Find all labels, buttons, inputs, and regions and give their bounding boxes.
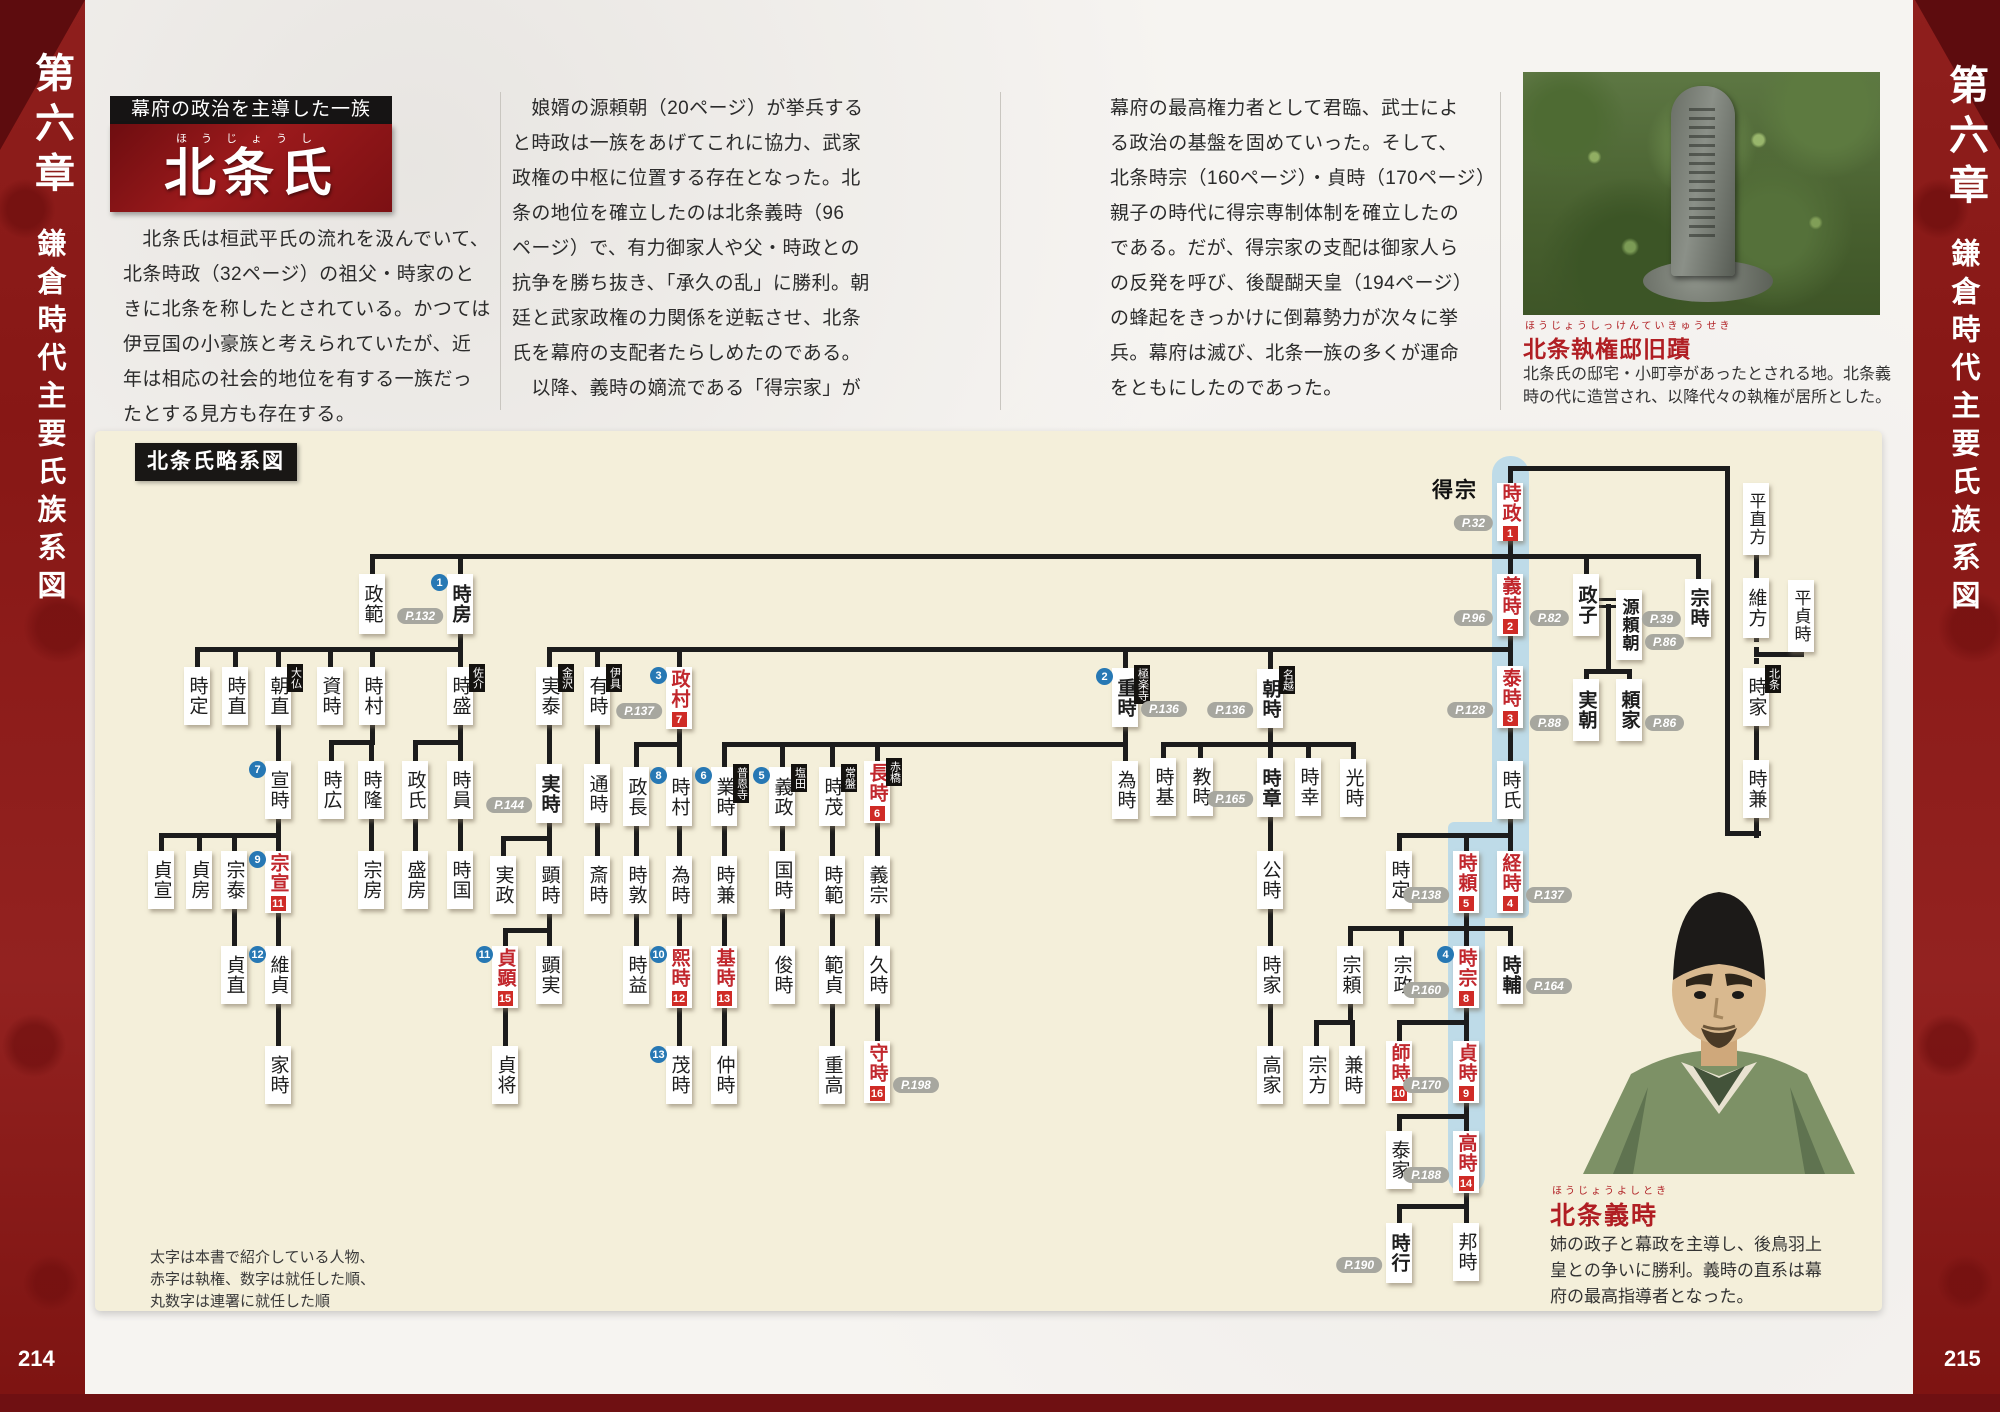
- tree-connector: [1754, 724, 1759, 764]
- page-ref-badge: P.165: [1207, 791, 1253, 807]
- tree-connector: [634, 912, 639, 950]
- tree-connector: [1508, 726, 1513, 765]
- person-name: 貞宣: [152, 860, 171, 900]
- tree-connector: [1397, 1020, 1469, 1025]
- tree-connector: [276, 1002, 281, 1050]
- tree-connector: [780, 824, 785, 855]
- tree-connector: [1314, 1020, 1319, 1050]
- person-node: 久時: [864, 946, 890, 1004]
- person-node: 俊時: [769, 946, 795, 1004]
- person-name: 時輔: [1501, 955, 1520, 995]
- person-name: 実朝: [1577, 690, 1596, 730]
- yoshitoki-illustration: [1553, 862, 1885, 1174]
- shikken-order-badge: 14: [1459, 1176, 1474, 1191]
- person-name: 政長: [627, 777, 646, 817]
- branch-family-tag: 塩田: [791, 764, 807, 792]
- person-node: 顕実: [536, 946, 562, 1004]
- person-name: 盛房: [406, 860, 425, 900]
- person-name: 実時: [540, 774, 559, 814]
- tree-connector: [547, 647, 1513, 652]
- person-node: 資時: [317, 667, 343, 725]
- rensho-order-badge: 9: [249, 851, 266, 868]
- person-name: 重高: [823, 1055, 842, 1095]
- page-ref-badge: P.86: [1645, 715, 1684, 731]
- person-node: 時村: [666, 767, 692, 826]
- tree-connector: [1268, 907, 1273, 950]
- shikken-order-badge: 11: [271, 896, 286, 911]
- tree-legend: 太字は本書で紹介している人物、赤字は執権、数字は就任した順、丸数字は連署に就任し…: [150, 1246, 375, 1312]
- person-node: 時氏: [1497, 761, 1523, 819]
- person-name: 斎時: [588, 865, 607, 905]
- person-name: 時宗: [1457, 948, 1476, 988]
- tree-connector: [1508, 466, 1730, 471]
- shikken-order-badge: 2: [1503, 619, 1518, 634]
- page-ref-badge: P.138: [1403, 887, 1449, 903]
- page-ref-badge: P.132: [397, 608, 443, 624]
- person-name: 経時: [1501, 853, 1520, 893]
- rensho-order-badge: 6: [695, 767, 712, 784]
- rensho-order-badge: 11: [476, 946, 493, 963]
- person-node: 重高: [819, 1046, 845, 1104]
- page-ref-badge: P.144: [486, 797, 532, 813]
- person-name: 重時: [1116, 678, 1135, 718]
- person-node: 国時: [769, 851, 795, 909]
- person-node: 斎時: [584, 856, 610, 914]
- person-node: 経時4: [1497, 851, 1523, 913]
- page-ref-badge: P.188: [1403, 1167, 1449, 1183]
- person-node: 貞顕15: [492, 946, 518, 1008]
- person-name: 基時: [715, 948, 734, 988]
- page-ref-badge: P.198: [893, 1077, 939, 1093]
- person-node: 時基: [1150, 758, 1176, 816]
- tree-connector: [1508, 634, 1513, 670]
- person-name: 顕時: [540, 865, 559, 905]
- person-name: 政範: [363, 584, 382, 624]
- person-node: 為時: [1112, 761, 1138, 819]
- person-node: 守時16: [864, 1041, 890, 1103]
- person-name: 時益: [627, 955, 646, 995]
- person-name: 頼家: [1620, 690, 1639, 730]
- rensho-order-badge: 12: [249, 946, 266, 963]
- tree-connector: [1725, 466, 1730, 836]
- person-node: 時敦: [623, 856, 649, 914]
- person-name: 宗方: [1307, 1055, 1326, 1095]
- rensho-order-badge: 10: [650, 946, 667, 963]
- person-name: 国時: [773, 860, 792, 900]
- branch-family-tag: 普恩寺: [733, 764, 749, 803]
- tree-connector: [634, 742, 682, 747]
- shikken-order-badge: 8: [1459, 991, 1474, 1006]
- person-name: 時敦: [627, 865, 646, 905]
- person-name: 実泰: [540, 676, 559, 716]
- person-node: 時隆: [358, 761, 384, 819]
- person-node: 頼家: [1616, 679, 1642, 741]
- person-node: 時益: [623, 946, 649, 1004]
- person-name: 顕実: [540, 955, 559, 995]
- person-node: 貞房: [186, 851, 212, 909]
- person-name: 時村: [363, 676, 382, 716]
- person-node: 時政1: [1497, 483, 1523, 541]
- page-ref-badge: P.170: [1403, 1077, 1449, 1093]
- tree-connector: [1754, 816, 1759, 838]
- rensho-order-badge: 5: [753, 767, 770, 784]
- person-name: 茂時: [670, 1055, 689, 1095]
- person-name: 義宗: [868, 865, 887, 905]
- text-line: 皇との争いに勝利。義時の直系は幕: [1550, 1256, 1890, 1282]
- rensho-order-badge: 8: [650, 767, 667, 784]
- person-name: 政子: [1577, 585, 1596, 625]
- rensho-order-badge: 3: [650, 667, 667, 684]
- tree-connector: [677, 1006, 682, 1050]
- person-node: 兼時: [1339, 1046, 1365, 1104]
- person-node: 時国: [447, 851, 473, 909]
- person-name: 維方: [1747, 588, 1766, 628]
- person-node: 時兼: [1743, 760, 1769, 818]
- person-name: 宗頼: [1341, 955, 1360, 995]
- person-node: 為時: [666, 856, 692, 914]
- text-line: 太字は本書で紹介している人物、: [150, 1246, 375, 1268]
- person-node: 平直方: [1743, 483, 1769, 555]
- tree-connector: [677, 824, 682, 860]
- person-node: 師時10: [1386, 1041, 1412, 1103]
- person-name: 朝時: [1261, 679, 1280, 719]
- person-node: 宗方: [1303, 1046, 1329, 1104]
- person-name: 高家: [1261, 1055, 1280, 1095]
- person-node: 平貞時: [1788, 580, 1814, 652]
- person-name: 時茂: [823, 777, 842, 817]
- person-node: 基時13: [711, 946, 737, 1008]
- person-node: 宗時: [1685, 579, 1711, 637]
- person-name: 平貞時: [1793, 589, 1810, 643]
- tree-canvas: 平直方維方平貞時時家北条時兼時政1P.32政範時房1P.132義時2P.96政子…: [0, 0, 2000, 1412]
- person-node: 貞直: [221, 946, 247, 1004]
- person-node: 時行: [1386, 1223, 1412, 1283]
- person-node: 義時2: [1497, 574, 1523, 636]
- person-name: 業時: [715, 777, 734, 817]
- tree-connector: [595, 821, 600, 860]
- branch-family-tag: 金沢: [558, 664, 574, 692]
- person-name: 家時: [269, 1055, 288, 1095]
- tree-connector: [232, 907, 237, 950]
- person-node: 時章: [1257, 758, 1283, 817]
- person-name: 時盛: [451, 676, 470, 716]
- page-ref-badge: P.128: [1447, 702, 1493, 718]
- person-node: 高時14: [1453, 1131, 1479, 1193]
- person-name: 範貞: [823, 955, 842, 995]
- tree-connector: [1348, 926, 1513, 931]
- tokuso-label: 得宗: [1432, 474, 1478, 504]
- tree-connector: [1268, 1002, 1273, 1050]
- person-node: 時宗8: [1453, 946, 1479, 1008]
- rensho-order-badge: 1: [431, 574, 448, 591]
- rensho-order-badge: 7: [249, 761, 266, 778]
- branch-family-tag: 極楽寺: [1134, 665, 1150, 704]
- branch-family-tag: 常盤: [841, 764, 857, 792]
- shikken-order-badge: 15: [498, 991, 513, 1006]
- person-node: 宗宣11: [265, 851, 291, 913]
- tree-connector: [595, 723, 600, 768]
- person-name: 時政: [1501, 483, 1520, 523]
- person-name: 時章: [1261, 768, 1280, 808]
- person-node: 盛房: [402, 851, 428, 909]
- tree-connector: [780, 907, 785, 950]
- tree-connector: [722, 824, 727, 860]
- tree-connector: [458, 817, 463, 855]
- person-node: 時広: [318, 761, 344, 819]
- person-name: 時定: [188, 676, 207, 716]
- tree-connector: [875, 912, 880, 950]
- person-name: 貞顕: [496, 948, 515, 988]
- person-name: 時範: [823, 865, 842, 905]
- tree-connector: [369, 817, 374, 855]
- person-name: 公時: [1261, 860, 1280, 900]
- person-name: 泰時: [1501, 668, 1520, 708]
- person-name: 仲時: [715, 1055, 734, 1095]
- tree-connector: [634, 824, 639, 860]
- tree-connector: [1584, 669, 1632, 674]
- person-node: 教時: [1187, 758, 1213, 816]
- person-name: 時幸: [1299, 767, 1318, 807]
- shikken-order-badge: 7: [672, 712, 687, 727]
- person-name: 政村: [670, 669, 689, 709]
- person-name: 宗宣: [269, 853, 288, 893]
- person-name: 師時: [1390, 1043, 1409, 1083]
- person-name: 時隆: [362, 770, 381, 810]
- person-node: 光時: [1340, 759, 1366, 817]
- person-name: 為時: [670, 865, 689, 905]
- tree-connector: [875, 1002, 880, 1045]
- page-ref-badge: P.39: [1642, 611, 1681, 627]
- page-ref-badge: P.32: [1454, 515, 1493, 531]
- portrait-caption-name: 北条義時: [1550, 1196, 1658, 1232]
- person-name: 俊時: [773, 955, 792, 995]
- page-number-left: 214: [18, 1346, 55, 1372]
- tree-connector: [1606, 604, 1611, 674]
- tree-connector: [370, 554, 1701, 559]
- rensho-order-badge: 2: [1096, 668, 1113, 685]
- yoshitoki-portrait: [1553, 862, 1885, 1174]
- person-name: 時氏: [1501, 770, 1520, 810]
- person-name: 時直: [226, 676, 245, 716]
- person-name: 義時: [1501, 576, 1520, 616]
- person-node: 貞宣: [148, 851, 174, 909]
- person-node: 時村: [359, 667, 385, 725]
- tree-connector: [1754, 652, 1804, 657]
- person-node: 貞時9: [1453, 1041, 1479, 1103]
- person-node: 邦時: [1453, 1223, 1479, 1281]
- person-node: 時頼5: [1453, 851, 1479, 913]
- rensho-order-badge: 4: [1437, 946, 1454, 963]
- person-name: 邦時: [1457, 1232, 1476, 1272]
- person-name: 宗房: [362, 860, 381, 900]
- person-node: 公時: [1257, 851, 1283, 909]
- page-number-right: 215: [1944, 1346, 1981, 1372]
- text-line: 姉の政子と幕政を主導し、後鳥羽上: [1550, 1230, 1890, 1256]
- person-name: 平直方: [1748, 492, 1765, 546]
- person-name: 時家: [1261, 955, 1280, 995]
- page-ref-badge: P.82: [1530, 610, 1569, 626]
- branch-family-tag: 大仏: [287, 664, 303, 692]
- tree-connector: [159, 833, 281, 838]
- person-name: 有時: [588, 676, 607, 716]
- person-name: 貞直: [225, 955, 244, 995]
- tree-connector: [1598, 598, 1618, 601]
- tree-connector: [413, 740, 463, 745]
- person-node: 維方: [1743, 578, 1769, 638]
- page-ref-badge: P.86: [1645, 634, 1684, 650]
- tree-connector: [1161, 742, 1356, 747]
- person-node: 義宗: [864, 856, 890, 914]
- tree-connector: [1314, 1020, 1355, 1025]
- person-node: 源頼朝: [1616, 590, 1642, 660]
- person-name: 維貞: [269, 955, 288, 995]
- person-name: 政氏: [406, 770, 425, 810]
- person-node: 時輔: [1497, 946, 1523, 1004]
- person-name: 長時: [868, 763, 887, 803]
- tree-connector: [276, 911, 281, 950]
- person-name: 時兼: [1747, 769, 1766, 809]
- branch-family-tag: 赤橋: [886, 758, 902, 786]
- shikken-order-badge: 9: [1459, 1086, 1474, 1101]
- page-ref-badge: P.136: [1141, 701, 1187, 717]
- person-name: 貞時: [1457, 1043, 1476, 1083]
- person-node: 維貞: [265, 946, 291, 1004]
- text-line: 府の最高指導者となった。: [1550, 1282, 1890, 1308]
- person-name: 時員: [451, 770, 470, 810]
- branch-family-tag: 佐介: [469, 664, 485, 692]
- tree-connector: [503, 928, 552, 933]
- person-name: 高時: [1457, 1133, 1476, 1173]
- person-name: 時基: [1154, 767, 1173, 807]
- person-node: 時直: [222, 667, 248, 725]
- text-line: 丸数字は連署に就任した順: [150, 1290, 375, 1312]
- tree-connector: [276, 723, 281, 765]
- shikken-order-badge: 13: [717, 991, 732, 1006]
- branch-family-tag: 北条: [1765, 665, 1781, 693]
- person-name: 久時: [868, 955, 887, 995]
- person-name: 兼時: [1343, 1055, 1362, 1095]
- person-name: 実政: [494, 865, 513, 905]
- portrait-caption-ruby: ほうじょうよしとき: [1552, 1182, 1669, 1197]
- tree-connector: [1397, 1114, 1469, 1119]
- page-ref-badge: P.160: [1403, 982, 1449, 998]
- person-node: 貞将: [492, 1046, 518, 1104]
- person-node: 実時: [536, 764, 562, 823]
- shikken-order-badge: 4: [1503, 896, 1518, 911]
- person-node: 政長: [623, 767, 649, 826]
- shikken-order-badge: 1: [1503, 526, 1518, 541]
- shikken-order-badge: 3: [1503, 711, 1518, 726]
- tree-connector: [547, 723, 552, 768]
- person-node: 宗頼: [1337, 946, 1363, 1004]
- person-node: 泰時3: [1497, 666, 1523, 728]
- tree-connector: [1350, 1020, 1355, 1050]
- person-name: 源頼朝: [1621, 598, 1638, 652]
- person-name: 時行: [1390, 1233, 1409, 1273]
- person-node: 顕時: [536, 856, 562, 914]
- person-node: 時範: [819, 856, 845, 914]
- tree-connector: [501, 836, 552, 841]
- person-node: 茂時: [666, 1046, 692, 1104]
- tree-connector: [677, 912, 682, 950]
- person-name: 時房: [451, 584, 470, 624]
- shikken-order-badge: 12: [672, 991, 687, 1006]
- person-node: 煕時12: [666, 946, 692, 1008]
- tree-connector: [830, 824, 835, 860]
- person-node: 通時: [584, 764, 610, 823]
- tree-connector: [1268, 815, 1273, 855]
- rensho-order-badge: 13: [650, 1046, 667, 1063]
- person-node: 政村7: [666, 667, 692, 729]
- tree-connector: [722, 1006, 727, 1050]
- person-node: 宗房: [358, 851, 384, 909]
- page-ref-badge: P.88: [1530, 715, 1569, 731]
- person-name: 貞房: [190, 860, 209, 900]
- person-node: 高家: [1257, 1046, 1283, 1104]
- branch-family-tag: 名越: [1279, 666, 1295, 694]
- person-node: 時兼: [711, 856, 737, 914]
- person-name: 時兼: [715, 865, 734, 905]
- person-node: 家時: [265, 1046, 291, 1104]
- branch-family-tag: 伊具: [606, 664, 622, 692]
- person-name: 朝直: [269, 676, 288, 716]
- person-node: 時幸: [1295, 758, 1321, 816]
- person-name: 義政: [773, 777, 792, 817]
- tree-connector: [1397, 833, 1513, 838]
- person-node: 範貞: [819, 946, 845, 1004]
- person-name: 光時: [1344, 768, 1363, 808]
- page-ref-badge: P.96: [1454, 610, 1493, 626]
- text-line: 赤字は執権、数字は就任した順、: [150, 1268, 375, 1290]
- person-node: 実政: [490, 856, 516, 914]
- tree-connector: [875, 821, 880, 860]
- person-name: 宣時: [269, 770, 288, 810]
- tree-connector: [413, 817, 418, 855]
- tree-connector: [1397, 1204, 1469, 1209]
- person-name: 時国: [451, 860, 470, 900]
- page-ref-badge: P.190: [1336, 1257, 1382, 1273]
- tree-connector: [503, 1006, 508, 1050]
- person-name: 貞将: [496, 1055, 515, 1095]
- shikken-order-badge: 16: [870, 1086, 885, 1101]
- person-node: 政子: [1573, 574, 1599, 636]
- tree-connector: [722, 912, 727, 950]
- person-node: 時員: [447, 761, 473, 819]
- person-node: 時家: [1257, 946, 1283, 1004]
- person-name: 守時: [868, 1043, 887, 1083]
- person-name: 時家: [1747, 677, 1766, 717]
- person-node: 宗泰: [221, 851, 247, 909]
- person-node: 仲時: [711, 1046, 737, 1104]
- portrait-caption-body: 姉の政子と幕政を主導し、後鳥羽上皇との争いに勝利。義時の直系は幕府の最高指導者と…: [1550, 1230, 1890, 1308]
- shikken-order-badge: 5: [1459, 896, 1474, 911]
- person-name: 宗泰: [225, 860, 244, 900]
- tree-connector: [830, 912, 835, 950]
- person-node: 政氏: [402, 761, 428, 819]
- person-name: 時村: [670, 777, 689, 817]
- person-name: 時広: [322, 770, 341, 810]
- person-node: 政範: [359, 574, 385, 634]
- person-node: 時定: [184, 667, 210, 725]
- person-node: 宣時: [265, 761, 291, 819]
- tree-connector: [830, 1002, 835, 1050]
- page-ref-badge: P.136: [1207, 702, 1253, 718]
- person-name: 煕時: [670, 948, 689, 988]
- page-ref-badge: P.137: [616, 703, 662, 719]
- person-name: 時頼: [1457, 853, 1476, 893]
- person-name: 通時: [588, 774, 607, 814]
- shikken-order-badge: 6: [870, 806, 885, 821]
